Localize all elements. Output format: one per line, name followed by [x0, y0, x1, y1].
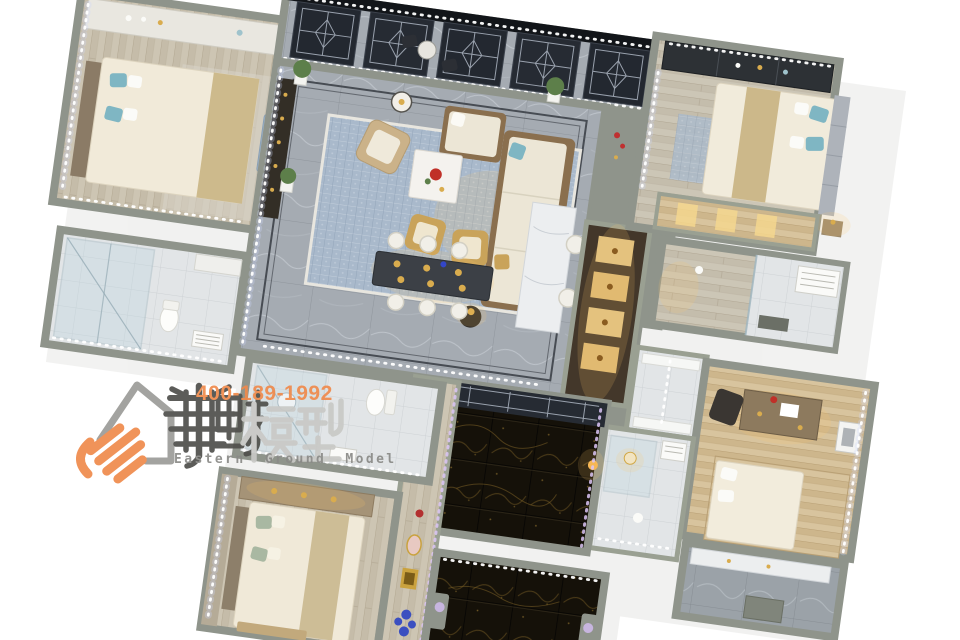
watermark-brand-en: Eastern Ground Model: [174, 452, 397, 467]
pillow: [494, 254, 510, 270]
pillow: [806, 137, 824, 151]
model: [0, 0, 919, 640]
house-hand-logo-icon: [80, 385, 171, 488]
room-bedroom-3: [201, 471, 399, 640]
pillow: [110, 73, 127, 87]
room-bedroom-2: [630, 36, 874, 257]
room-study: [682, 362, 875, 560]
photo-canvas: 400-189-1992 Eastern Ground Model: [0, 0, 960, 640]
towel-rack: [660, 441, 686, 462]
room-master-bath: [44, 230, 246, 370]
towel-rack: [795, 266, 840, 298]
coffee-table: [408, 149, 462, 203]
wall-stub: [743, 596, 784, 623]
scale-model-photo: 400-189-1992 Eastern Ground Model: [0, 0, 960, 640]
room-living-dining: [236, 38, 609, 397]
watermark-phone: 400-189-1992: [196, 382, 333, 405]
pillow: [256, 516, 272, 529]
